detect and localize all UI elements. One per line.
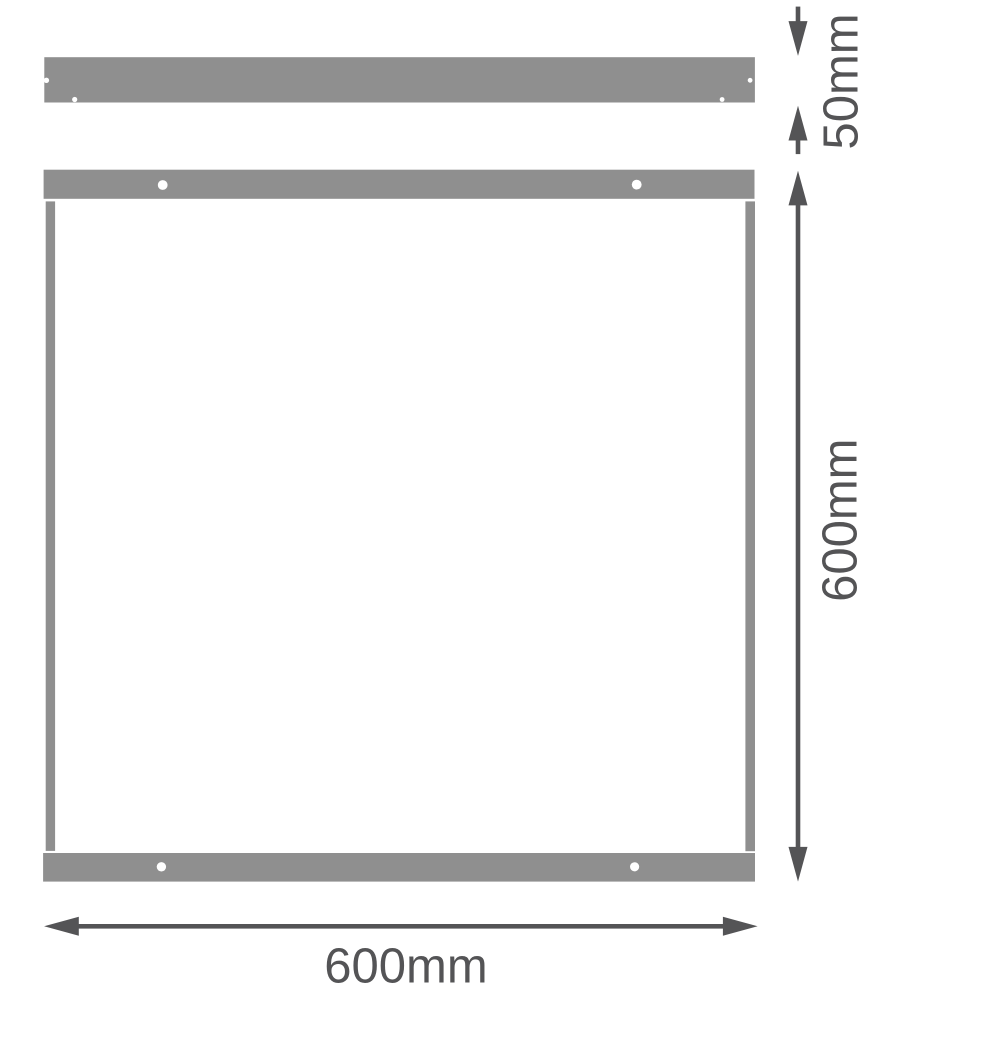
svg-text:600mm: 600mm	[814, 439, 868, 602]
svg-text:50mm: 50mm	[815, 13, 869, 149]
svg-text:600mm: 600mm	[324, 940, 487, 994]
